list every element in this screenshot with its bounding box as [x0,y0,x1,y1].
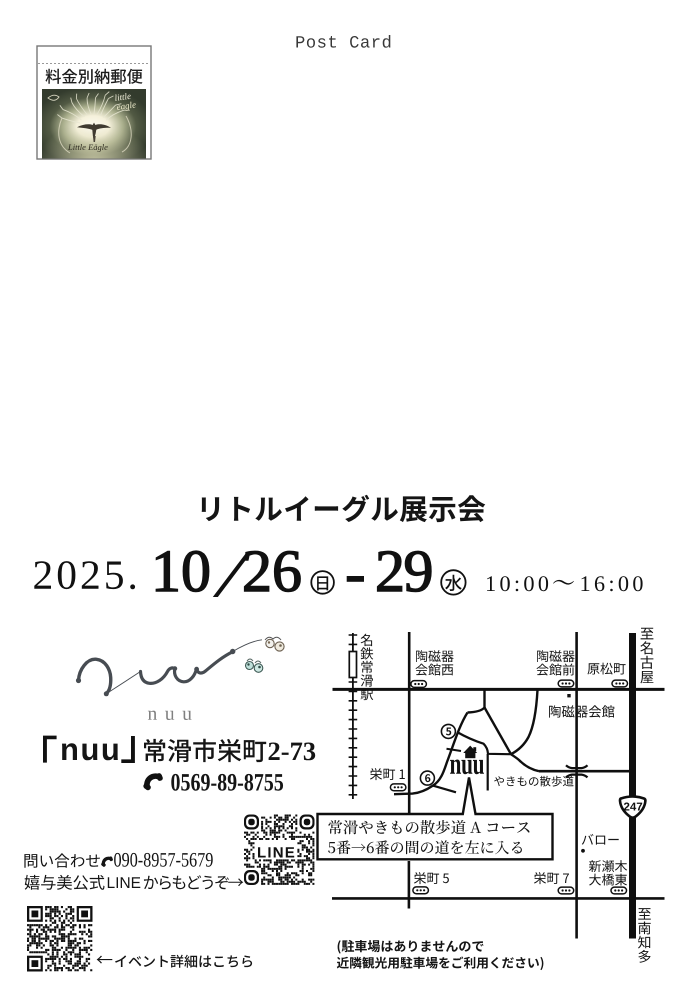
svg-text:Little Eägle: Little Eägle [67,142,108,152]
